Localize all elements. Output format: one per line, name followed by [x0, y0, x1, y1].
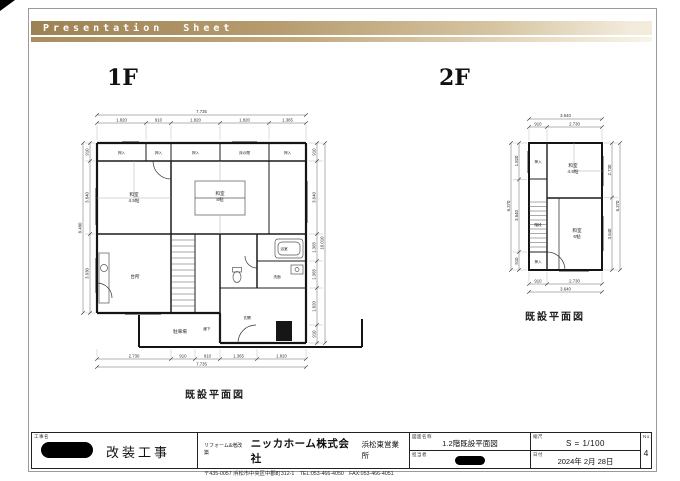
f2-dim-left-0: 1.820 [514, 155, 519, 166]
company-address: 〒435-0057 浜松市中央区中郡町312-1 TEL:053-466-405… [204, 469, 405, 477]
f1-room-washitsu45-l2: 4.5帖 [129, 197, 140, 204]
f1-room-washitsu8-l1: 和室 [215, 190, 225, 197]
f1-room-wash: 洗面 [273, 274, 281, 279]
f1-dim-right-5: 910 [312, 330, 317, 338]
f1-dim-left-1: 3.640 [85, 192, 90, 203]
scale-label: 縮尺 [533, 434, 543, 440]
f2-dim-top-1: 2.730 [569, 121, 580, 126]
office-name: 浜松東営業所 [362, 439, 405, 461]
floor1-plan: 7.735 1.820 910 1.820 1.820 1.365 2.730 … [77, 93, 387, 393]
f1-dim-top-total: 7.735 [196, 109, 207, 114]
f1-room-oshiire2: 押入 [155, 150, 163, 155]
f1-room-washitsu8-l2: 8帖 [216, 196, 224, 203]
drawing-name-row: 図面名称 1.2階既設平面図 [410, 433, 530, 450]
f1-dim-left-2: 3.930 [85, 268, 90, 279]
f1-dim-right-2: 1.365 [312, 242, 317, 253]
f2-dim-left-1: 3.640 [514, 210, 519, 221]
f1-dim-left-total: 8.480 [78, 222, 83, 233]
f1-dim-bottom-3: 1.365 [233, 354, 244, 359]
f2-room-washitsu6-l1: 和室 [572, 227, 582, 234]
floor1-caption: 既設平面図 [185, 386, 245, 401]
date-row: 日付 2024年 2月 28日 [531, 450, 640, 468]
title-block: 工事名 改装工事 リフォーム&増改築 ニッカホーム株式会社 浜松東営業所 〒43… [31, 432, 652, 469]
drawing-cell: 図面名称 1.2階既設平面図 担当者 [409, 433, 530, 468]
f1-dim-top-4: 1.365 [282, 117, 293, 122]
redacted-client-name [41, 442, 93, 458]
f2-room-washitsu45-l2: 4.5帖 [568, 168, 579, 175]
date-value: 2024年 2月 28日 [558, 453, 614, 467]
floor2-caption: 既設平面図 [525, 308, 585, 323]
f2-door-arcs [547, 252, 565, 270]
project-label: 工事名 [34, 434, 49, 440]
f1-dim-bottom-1: 910 [179, 354, 187, 359]
page-number: 4 [644, 444, 649, 458]
company-name: ニッカホーム株式会社 [251, 436, 357, 466]
f1-dim-top-3: 1.820 [239, 117, 250, 122]
f1-dim-top-0: 1.820 [116, 117, 127, 122]
f2-dimension-lines [511, 119, 620, 292]
date-label: 日付 [533, 452, 543, 458]
f1-dim-bottom-2: 910 [204, 354, 212, 359]
f1-tatami-lines [97, 161, 220, 234]
f1-dim-top-1: 910 [155, 117, 163, 122]
scale-date-cell: 縮尺 S = 1/100 日付 2024年 2月 28日 [530, 433, 640, 468]
header-strip [31, 37, 652, 42]
corner-mark [0, 0, 15, 11]
header-title: Presentation Sheet [31, 23, 233, 34]
f1-dim-bottom-total: 7.735 [196, 362, 207, 367]
f2-dim-left-2: 910 [514, 257, 519, 265]
f1-room-kitchen: 台所 [130, 273, 140, 280]
f1-room-hall: 廊下 [203, 326, 211, 331]
f2-dim-bottom-1: 2.730 [569, 279, 580, 284]
header-bar: Presentation Sheet [31, 21, 652, 35]
f1-dim-bottom-0: 2.730 [129, 354, 140, 359]
f2-tatami-lines [574, 143, 602, 171]
f2-room-washitsu6-l2: 6帖 [573, 233, 581, 240]
scale-row: 縮尺 S = 1/100 [531, 433, 640, 450]
f2-dim-right-0: 2.730 [607, 164, 612, 175]
f1-room-oshiire1: 押入 [118, 150, 126, 155]
company-tagline: リフォーム&増改築 [204, 442, 246, 456]
f2-room-oshiire-bottom: 押入 [534, 259, 542, 264]
f2-dim-bottom-0: 910 [534, 279, 542, 284]
f1-entry-step [276, 321, 292, 341]
f1-stair-treads [171, 240, 195, 306]
f1-dim-right-3: 1.365 [312, 269, 317, 280]
f1-room-bath: 浴室 [280, 246, 288, 251]
company-cell: リフォーム&増改築 ニッカホーム株式会社 浜松東営業所 〒435-0057 浜松… [197, 433, 409, 468]
floor2-plan: 3.640 910 2.730 910 2.730 3.640 1.820 3.… [469, 101, 669, 321]
page: Presentation Sheet 1F 2F [0, 0, 680, 481]
project-cell: 工事名 改装工事 [32, 433, 197, 468]
page-number-label: No. [643, 434, 652, 439]
redacted-staff-name [455, 456, 485, 465]
drawing-sheet: Presentation Sheet 1F 2F [28, 8, 657, 472]
drawing-name: 1.2階既設平面図 [442, 435, 497, 449]
f2-dim-right-1: 3.640 [607, 228, 612, 239]
f1-room-entry: 玄関 [243, 315, 251, 320]
f1-dim-right-1: 3.640 [312, 192, 317, 203]
page-number-cell: No. 4 [640, 433, 651, 468]
staff-label: 担当者 [412, 452, 427, 458]
f1-room-garage: 駐車場 [173, 328, 187, 335]
f1-dim-top-2: 1.820 [190, 117, 201, 122]
scale-value: S = 1/100 [566, 436, 605, 448]
f1-room-oshiire3: 押入 [192, 150, 200, 155]
f2-dim-bottom-total: 3.640 [560, 287, 571, 292]
floor2-label: 2F [439, 65, 470, 91]
f1-room-washitsu45-l1: 和室 [129, 191, 139, 198]
floor1-label: 1F [107, 65, 138, 91]
staff-row: 担当者 [410, 450, 530, 468]
f2-dim-top-total: 3.640 [560, 113, 571, 118]
f1-room-tokonoma: 床の間 [239, 150, 250, 155]
f2-room-oshiire-top: 押入 [534, 159, 542, 164]
f2-dim-left-total: 6.370 [506, 200, 511, 211]
f1-room-oshiire4: 押入 [284, 150, 292, 155]
f2-room-washitsu45-l1: 和室 [568, 162, 578, 169]
f1-dim-right-0: 910 [312, 148, 317, 156]
f1-dim-bottom-4: 1.820 [276, 354, 287, 359]
project-name: 改装工事 [106, 442, 170, 461]
f1-dim-right-total: 10.010 [320, 236, 325, 250]
f2-dim-top-0: 910 [534, 121, 542, 126]
f2-room-stairs: 階段 [534, 222, 542, 227]
f1-dim-left-0: 910 [85, 148, 90, 156]
f1-dim-right-4: 1.820 [312, 301, 317, 312]
f2-dim-right-total: 6.370 [615, 200, 620, 211]
drawing-name-label: 図面名称 [412, 434, 432, 440]
